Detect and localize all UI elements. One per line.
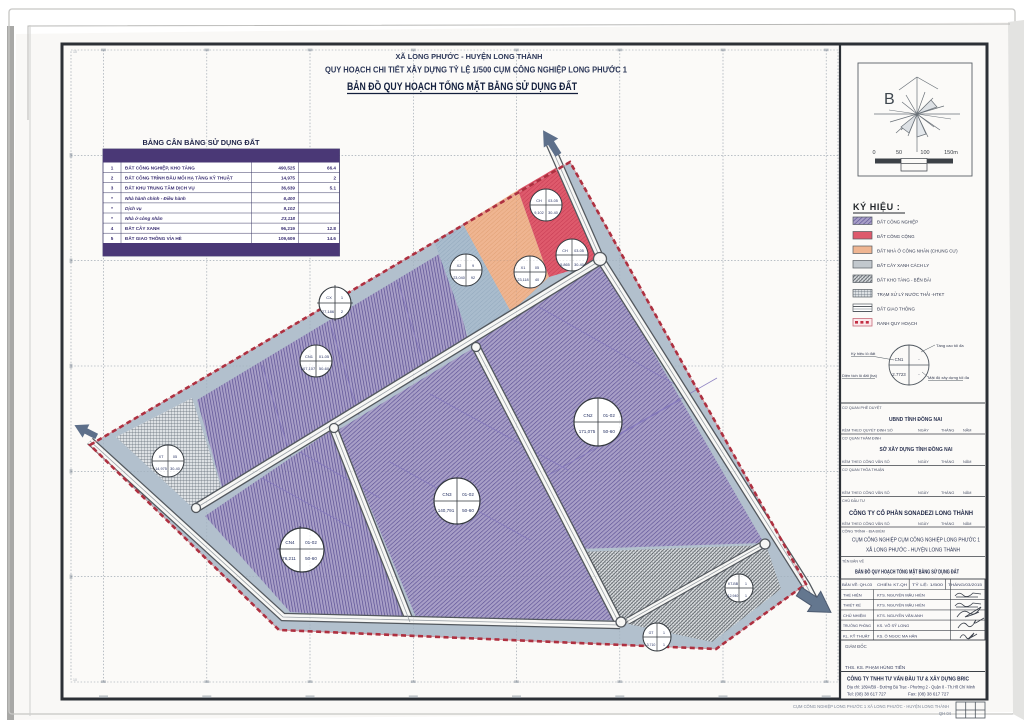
- svg-text:100: 100: [920, 150, 929, 156]
- svg-text:CƠ QUAN THỎA THUẬN: CƠ QUAN THỎA THUẬN: [842, 467, 884, 472]
- svg-text:NGÀY: NGÀY: [918, 460, 929, 464]
- svg-text:30-40: 30-40: [170, 467, 180, 471]
- svg-text:CN1: CN1: [305, 354, 314, 359]
- svg-text:2.7723: 2.7723: [892, 372, 906, 377]
- svg-text:3: 3: [111, 186, 114, 191]
- svg-text:05: 05: [535, 266, 539, 270]
- svg-text:01-02: 01-02: [305, 540, 317, 545]
- svg-text:CN3: CN3: [442, 492, 452, 497]
- svg-text:THÁNG/03/2015: THÁNG/03/2015: [948, 582, 983, 587]
- svg-text:CƠ QUAN THẨM ĐỊNH: CƠ QUAN THẨM ĐỊNH: [842, 436, 881, 441]
- svg-text:KTS. NGUYỄN MẬU HIỀN: KTS. NGUYỄN MẬU HIỀN: [877, 593, 925, 598]
- svg-text:XÃ LONG PHƯỚC - HUYỆN LONG THÀ: XÃ LONG PHƯỚC - HUYỆN LONG THÀNH: [396, 52, 543, 61]
- svg-text:THÁNG: THÁNG: [941, 491, 954, 495]
- svg-text:NGÀY: NGÀY: [918, 429, 929, 433]
- svg-text:50: 50: [896, 150, 902, 156]
- svg-text:KS. Ô NGỌC MA HẢN: KS. Ô NGỌC MA HẢN: [877, 633, 917, 638]
- svg-text:36,639: 36,639: [281, 186, 295, 191]
- svg-text:ĐẤT CÔNG CỘNG: ĐẤT CÔNG CỘNG: [877, 234, 915, 239]
- svg-text:TỶ LỆ: 1/500: TỶ LỆ: 1/500: [912, 582, 944, 587]
- svg-text:ĐẤT CÔNG NGHIỆP: ĐẤT CÔNG NGHIỆP: [877, 220, 918, 225]
- svg-text:0: 0: [872, 150, 875, 156]
- svg-text:50-60: 50-60: [305, 556, 317, 561]
- svg-text:12.8: 12.8: [327, 226, 336, 231]
- svg-text:30-40: 30-40: [574, 263, 584, 267]
- svg-text:NGÀY: NGÀY: [918, 491, 929, 495]
- svg-text:171,075: 171,075: [579, 429, 596, 434]
- svg-text:CN4: CN4: [285, 540, 295, 545]
- svg-text:THÁNG: THÁNG: [941, 429, 954, 433]
- svg-text:5: 5: [111, 236, 114, 241]
- svg-text:CÔNG TY TNHH TƯ VẤN ĐẦU TƯ & X: CÔNG TY TNHH TƯ VẤN ĐẦU TƯ & XÂY DỰNG BR…: [847, 675, 969, 683]
- svg-text:KÈM THEO CÔNG VĂN SỐ: KÈM THEO CÔNG VĂN SỐ: [842, 521, 890, 526]
- svg-text:Nhà ở công nhân: Nhà ở công nhân: [125, 216, 163, 221]
- svg-text:QH 04: QH 04: [939, 711, 952, 716]
- svg-text:THS. KS. PHẠM HÙNG TIẾN: THS. KS. PHẠM HÙNG TIẾN: [845, 664, 905, 670]
- svg-text:2: 2: [333, 176, 336, 181]
- svg-text:Diện tích lô đất (ha): Diện tích lô đất (ha): [842, 373, 878, 378]
- svg-text:6,400: 6,400: [284, 196, 296, 201]
- svg-text:NĂM: NĂM: [963, 522, 971, 526]
- svg-text:NĂM: NĂM: [963, 491, 971, 495]
- svg-text:QUY HOẠCH CHI TIẾT XÂY DỰNG TỶ: QUY HOẠCH CHI TIẾT XÂY DỰNG TỶ LỆ 1/500 …: [325, 65, 628, 75]
- svg-text:03-05: 03-05: [548, 199, 558, 203]
- svg-text:ĐẤT CÔNG TRÌNH ĐẦU MỐI HẠ TẦNG: ĐẤT CÔNG TRÌNH ĐẦU MỐI HẠ TẦNG KỸ THUẬT: [125, 174, 233, 181]
- svg-text:BẢN ĐỒ QUY HOẠCH TỔNG MẶT BẰNG: BẢN ĐỒ QUY HOẠCH TỔNG MẶT BẰNG SỬ DỤNG Đ…: [347, 80, 577, 93]
- svg-text:23,118: 23,118: [517, 278, 528, 282]
- svg-text:TRẠM XỬ LÝ NƯỚC THẢI -HTKT: TRẠM XỬ LÝ NƯỚC THẢI -HTKT: [877, 292, 945, 297]
- svg-text:9: 9: [472, 264, 474, 268]
- svg-text:05: 05: [173, 455, 177, 459]
- svg-text:CỤM CÔNG NGHIỆP CỤM CÔNG NGHIỆ: CỤM CÔNG NGHIỆP CỤM CÔNG NGHIỆP LONG PHƯ…: [852, 536, 980, 544]
- svg-text:THỂ HIỆN: THỂ HIỆN: [843, 593, 862, 598]
- svg-text:XT: XT: [159, 455, 165, 459]
- svg-text:KTS. NGUYỄN VĂN ANH: KTS. NGUYỄN VĂN ANH: [877, 613, 923, 618]
- svg-text:Nhà hành chính - Điều hành: Nhà hành chính - Điều hành: [125, 196, 186, 201]
- svg-text:CH: CH: [536, 199, 542, 203]
- svg-text:BẢNG CÂN BẰNG SỬ DỤNG ĐẤT: BẢNG CÂN BẰNG SỬ DỤNG ĐẤT: [143, 137, 261, 147]
- svg-text:Dịch vụ: Dịch vụ: [125, 206, 142, 211]
- svg-text:1: 1: [111, 166, 114, 171]
- svg-text:SỞ XÂY DỰNG TỈNH ĐỒNG NAI: SỞ XÂY DỰNG TỈNH ĐỒNG NAI: [880, 446, 953, 453]
- svg-text:X2: X2: [457, 264, 462, 268]
- svg-text:CÔNG TRÌNH - ĐỊA ĐIỂM: CÔNG TRÌNH - ĐỊA ĐIỂM: [842, 529, 885, 534]
- svg-text:ĐẤT CÔNG NGHIỆP, KHO TÀNG: ĐẤT CÔNG NGHIỆP, KHO TÀNG: [125, 164, 195, 171]
- svg-text:KS. VÕ SỸ LONG: KS. VÕ SỸ LONG: [877, 623, 909, 628]
- svg-text:CN2: CN2: [583, 413, 593, 418]
- svg-text:1: 1: [745, 582, 747, 586]
- svg-text:23,118: 23,118: [280, 216, 295, 221]
- svg-text:Tel: (08) 38 617 727: Tel: (08) 38 617 727: [847, 692, 887, 697]
- svg-text:1: 1: [663, 631, 665, 635]
- svg-text:4: 4: [111, 226, 114, 231]
- svg-text:B: B: [884, 91, 895, 108]
- svg-text:RANH QUY HOẠCH: RANH QUY HOẠCH: [877, 321, 917, 326]
- svg-text:Ký hiệu lô đất: Ký hiệu lô đất: [851, 351, 876, 356]
- svg-text:NGÀY: NGÀY: [918, 522, 929, 526]
- svg-text:*: *: [111, 216, 113, 221]
- svg-text:9,102: 9,102: [284, 206, 296, 211]
- svg-text:9,102: 9,102: [534, 211, 544, 215]
- svg-text:140,791: 140,791: [438, 508, 455, 513]
- svg-text:Fax: (08) 38 617 727: Fax: (08) 38 617 727: [908, 692, 949, 697]
- svg-text:CX: CX: [326, 295, 332, 300]
- svg-text:40: 40: [535, 278, 539, 282]
- svg-text:CHỦ ĐẦU TƯ: CHỦ ĐẦU TƯ: [842, 498, 865, 503]
- svg-text:107,107: 107,107: [301, 366, 316, 371]
- svg-text:76,211: 76,211: [282, 556, 296, 561]
- svg-text:TRƯỞNG PHÒNG: TRƯỞNG PHÒNG: [843, 623, 871, 628]
- svg-text:92: 92: [471, 276, 475, 280]
- svg-text:14.6: 14.6: [327, 236, 336, 241]
- svg-text:CÔNG TY CỔ PHẦN SONADEZI LONG: CÔNG TY CỔ PHẦN SONADEZI LONG THÀNH: [849, 509, 973, 517]
- svg-text:1: 1: [745, 594, 747, 598]
- svg-text:CH: CH: [562, 249, 568, 253]
- svg-text:ĐẤT KHU TRUNG TÂM DỊCH VỤ: ĐẤT KHU TRUNG TÂM DỊCH VỤ: [125, 185, 195, 191]
- svg-text:ĐẤT GIAO THÔNG VỈA HÈ: ĐẤT GIAO THÔNG VỈA HÈ: [125, 234, 182, 241]
- svg-text:50-60: 50-60: [462, 508, 474, 513]
- svg-text:BẢN VẼ: QH-03: BẢN VẼ: QH-03: [842, 582, 873, 587]
- svg-text:X1: X1: [521, 266, 526, 270]
- svg-text:*: *: [111, 206, 113, 211]
- svg-text:27,186: 27,186: [322, 309, 335, 314]
- svg-text:CHIẾN: KT-QH: CHIẾN: KT-QH: [877, 582, 907, 587]
- svg-text:01-02: 01-02: [462, 492, 474, 497]
- svg-text:109,609: 109,609: [278, 236, 295, 241]
- svg-text:CHỦ NHIỆM: CHỦ NHIỆM: [843, 613, 866, 618]
- svg-text:ĐẤT CÂY XANH: ĐẤT CÂY XANH: [125, 225, 160, 231]
- svg-text:490,525: 490,525: [278, 166, 295, 171]
- svg-text:THIẾT KẾ: THIẾT KẾ: [843, 603, 861, 608]
- svg-text:KÈM THEO CÔNG VĂN SỐ: KÈM THEO CÔNG VĂN SỐ: [842, 490, 890, 495]
- svg-text:14,975: 14,975: [155, 467, 167, 471]
- svg-text:2: 2: [111, 176, 114, 181]
- svg-text:Mật độ xây dựng tối đa: Mật độ xây dựng tối đa: [928, 375, 970, 380]
- svg-text:ĐẤT NHÀ Ở CÔNG NHÂN (CHUNG CƯ): ĐẤT NHÀ Ở CÔNG NHÂN (CHUNG CƯ): [877, 249, 958, 254]
- svg-text:XÃ LONG PHƯỚC - HUYỆN LONG THÀ: XÃ LONG PHƯỚC - HUYỆN LONG THÀNH: [866, 546, 960, 554]
- svg-text:ĐẤT KHO TÀNG - BẾN BÃI: ĐẤT KHO TÀNG - BẾN BÃI: [877, 278, 931, 283]
- svg-text:THÁNG: THÁNG: [941, 522, 954, 526]
- svg-text:14,975: 14,975: [281, 176, 295, 181]
- svg-text:96,219: 96,219: [281, 226, 295, 231]
- svg-text:UBND TỈNH ĐỒNG NAI: UBND TỈNH ĐỒNG NAI: [889, 416, 942, 423]
- svg-text:KT-BB: KT-BB: [728, 582, 739, 586]
- svg-text:5.1: 5.1: [330, 186, 337, 191]
- svg-text:30-40: 30-40: [548, 211, 558, 215]
- svg-text:KL. KỸ THUẬT: KL. KỸ THUẬT: [843, 633, 870, 638]
- svg-text:KÝ HIỆU :: KÝ HIỆU :: [853, 201, 900, 212]
- svg-text:66.4: 66.4: [327, 166, 336, 171]
- svg-text:10: 10: [73, 678, 77, 682]
- svg-text:50-60: 50-60: [319, 366, 330, 371]
- svg-text:TÊN BẢN VẼ: TÊN BẢN VẼ: [842, 559, 864, 564]
- svg-text:ĐẤT GIAO THÔNG: ĐẤT GIAO THÔNG: [877, 307, 915, 312]
- svg-text:BẢN ĐỒ QUY HOẠCH TỔNG MẶT BẰNG: BẢN ĐỒ QUY HOẠCH TỔNG MẶT BẰNG SỬ DỤNG Đ…: [855, 568, 960, 576]
- svg-text:KÈM THEO QUYẾT ĐỊNH SỐ: KÈM THEO QUYẾT ĐỊNH SỐ: [842, 428, 893, 433]
- svg-text:150m: 150m: [944, 150, 958, 156]
- svg-text:50-60: 50-60: [603, 429, 615, 434]
- svg-text:NĂM: NĂM: [963, 460, 971, 464]
- svg-text:12,940: 12,940: [728, 594, 739, 598]
- svg-text:01-05: 01-05: [319, 354, 330, 359]
- svg-text:GT: GT: [649, 631, 655, 635]
- svg-text:KÈM THEO CÔNG VĂN SỐ: KÈM THEO CÔNG VĂN SỐ: [842, 459, 890, 464]
- svg-text:03-05: 03-05: [574, 249, 584, 253]
- svg-text:Địa chỉ: 189A/B9 - Đường Bá Tr: Địa chỉ: 189A/B9 - Đường Bá Trạc - Phườn…: [847, 685, 976, 690]
- svg-text:*: *: [111, 196, 113, 201]
- svg-text:5,865: 5,865: [560, 263, 570, 267]
- svg-text:Tầng cao tối đa: Tầng cao tối đa: [936, 343, 964, 348]
- svg-text:GIÁM ĐỐC: GIÁM ĐỐC: [845, 644, 867, 649]
- svg-text:10: 10: [73, 50, 77, 54]
- svg-text:1: 1: [663, 643, 665, 647]
- svg-text:KTS. NGUYỄN MẬU HIỀN: KTS. NGUYỄN MẬU HIỀN: [877, 603, 925, 608]
- svg-text:CN1: CN1: [895, 357, 904, 362]
- svg-text:23,040: 23,040: [453, 276, 465, 280]
- svg-text:ĐẤT CÂY XANH CÁCH LY: ĐẤT CÂY XANH CÁCH LY: [877, 263, 929, 268]
- svg-text:THÁNG: THÁNG: [941, 460, 954, 464]
- svg-text:CƠ QUAN PHÊ DUYỆT: CƠ QUAN PHÊ DUYỆT: [842, 405, 882, 410]
- svg-text:3,710: 3,710: [647, 643, 656, 647]
- svg-text:NĂM: NĂM: [963, 429, 971, 433]
- svg-text:01-02: 01-02: [603, 413, 615, 418]
